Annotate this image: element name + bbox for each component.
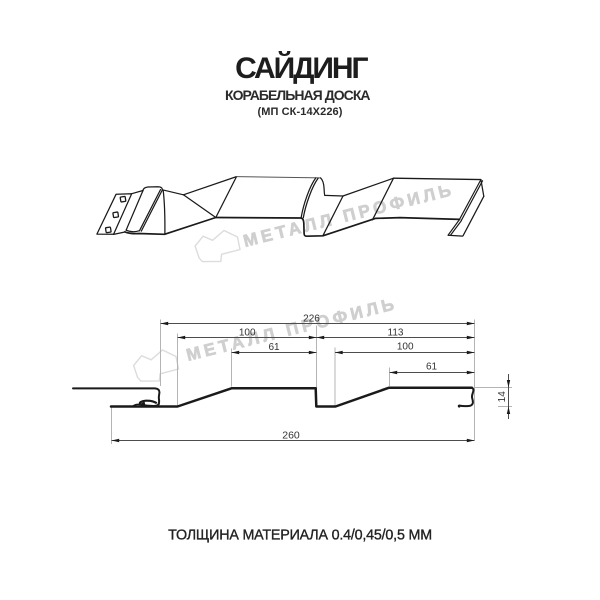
svg-text:100: 100 [397,342,414,353]
svg-text:(МП СК-14Х226): (МП СК-14Х226) [257,106,342,118]
svg-text:260: 260 [282,430,300,442]
svg-text:МЕТАЛЛ ПРОФИЛЬ: МЕТАЛЛ ПРОФИЛЬ [241,179,456,251]
svg-text:МЕТАЛЛ ПРОФИЛЬ: МЕТАЛЛ ПРОФИЛЬ [184,293,399,365]
svg-text:САЙДИНГ: САЙДИНГ [235,51,368,85]
svg-text:61: 61 [426,362,438,373]
svg-text:100: 100 [239,328,256,339]
svg-text:КОРАБЕЛЬНАЯ ДОСКА: КОРАБЕЛЬНАЯ ДОСКА [225,87,370,103]
svg-text:14: 14 [497,391,508,403]
svg-text:ТОЛЩИНА МАТЕРИАЛА 0.4/0,45/0,5: ТОЛЩИНА МАТЕРИАЛА 0.4/0,45/0,5 ММ [168,528,432,544]
svg-text:226: 226 [303,314,320,325]
svg-text:113: 113 [388,328,404,339]
svg-text:61: 61 [268,342,280,353]
